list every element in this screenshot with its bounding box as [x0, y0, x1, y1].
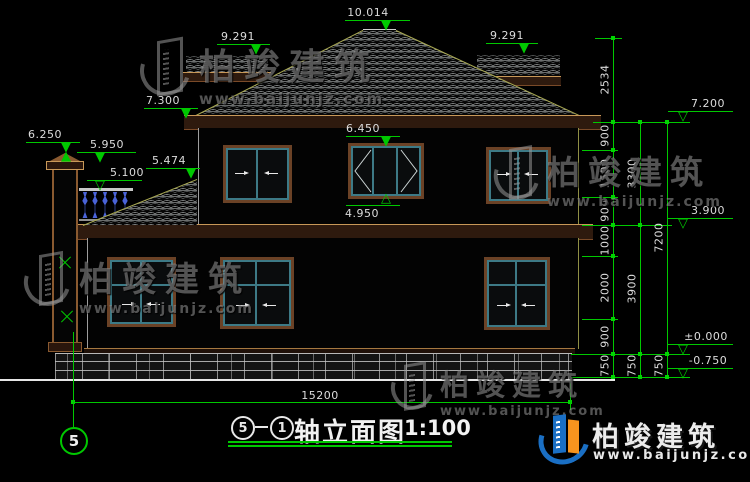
title-underline	[228, 445, 452, 447]
dim-extension-line	[570, 381, 571, 410]
logo-orange-tower	[568, 419, 579, 453]
level-label: 4.950	[332, 207, 392, 220]
window-glass	[487, 260, 547, 327]
dim-tick	[665, 375, 669, 379]
level-triangle-icon: ▲	[56, 151, 76, 162]
watermark-building	[157, 37, 183, 96]
axis-extension-line	[73, 332, 74, 427]
level-triangle-icon: ▼	[176, 108, 196, 119]
sub-ridge-left-tiles	[186, 56, 268, 73]
dim-tick	[638, 352, 642, 356]
slide-arrow-icon	[236, 305, 246, 306]
dim-tick	[611, 352, 615, 356]
window-mullion	[396, 148, 398, 194]
break-mark-icon	[58, 256, 72, 270]
level-triangle-icon: ▼	[514, 43, 534, 54]
window-2f-right	[486, 147, 551, 204]
dim-tick	[638, 223, 642, 227]
dim-tick	[611, 317, 615, 321]
elevation-drawing: 10.014 ▼ 9.291 ▼ 9.291 ▼ 7.300 ▼ 6.250 ▼…	[0, 0, 750, 482]
dim-value: 750	[653, 336, 666, 396]
dim-value: 750	[599, 336, 612, 396]
level-label: 5.950	[77, 138, 137, 151]
dim-tick	[611, 195, 615, 199]
title-axis-to: 1	[270, 416, 294, 440]
slide-arrow-icon	[497, 174, 507, 175]
dim-value: 7200	[653, 208, 666, 268]
logo-blue-tower	[553, 414, 566, 454]
window-mullion	[140, 262, 142, 322]
window-1f-middle	[220, 257, 294, 329]
slide-arrow-icon	[268, 173, 278, 174]
brand-logo-icon	[538, 414, 590, 466]
window-mullion	[517, 152, 519, 199]
dim-tick	[611, 36, 615, 40]
level-triangle-icon: ▼	[90, 152, 110, 163]
window-1f-right	[484, 257, 550, 330]
window-mullion	[515, 262, 517, 325]
level-triangle-icon: △	[376, 193, 396, 204]
drawing-title: 轴立面图	[294, 412, 406, 449]
casement-symbol-icon	[400, 149, 418, 193]
dim-tick	[665, 352, 669, 356]
window-mullion	[256, 150, 258, 198]
window-1f-left	[107, 257, 176, 327]
watermark-logo-icon	[140, 38, 192, 96]
dim-chain-line	[613, 38, 614, 379]
casement-symbol-icon	[354, 149, 372, 193]
window-transom	[112, 284, 171, 286]
title-axis-from: 5	[231, 416, 255, 440]
slide-arrow-icon	[122, 304, 132, 305]
stone-base	[55, 353, 572, 380]
overall-dim-value: 15200	[290, 389, 350, 402]
window-transom	[489, 284, 545, 286]
slide-arrow-icon	[266, 305, 276, 306]
dim-extension-line	[595, 38, 622, 39]
slide-arrow-icon	[525, 305, 535, 306]
dim-value: 3300	[626, 144, 639, 204]
dim-chain-line	[667, 122, 668, 379]
ground-line	[0, 379, 615, 381]
overall-dim-line	[73, 402, 570, 403]
title-dash	[255, 426, 268, 428]
dim-tick	[638, 120, 642, 124]
dim-tick	[611, 223, 615, 227]
level-triangle-icon: ▼	[181, 168, 201, 179]
axis-bubble: 5	[60, 427, 88, 455]
dim-tick	[611, 120, 615, 124]
dim-tick	[638, 375, 642, 379]
level-triangle-icon: ▽	[673, 218, 693, 229]
level-triangle-icon: ▽	[90, 180, 110, 191]
dim-chain-line	[640, 122, 641, 379]
dim-tick	[611, 375, 615, 379]
dim-value: 3900	[626, 259, 639, 319]
slide-arrow-icon	[150, 304, 160, 305]
slide-arrow-icon	[497, 305, 507, 306]
drawing-scale: 1:100	[404, 416, 471, 440]
brand-site: www.baijunjz.com	[593, 448, 750, 463]
dim-tick	[611, 148, 615, 152]
level-triangle-icon: ▼	[246, 44, 266, 55]
dim-tick	[665, 120, 669, 124]
window-transom	[225, 284, 289, 286]
window-mullion	[372, 148, 374, 194]
dim-tick	[611, 254, 615, 258]
baluster	[82, 192, 88, 218]
baluster	[92, 192, 98, 218]
sub-ridge-left-fascia	[183, 72, 271, 82]
slide-arrow-icon	[235, 173, 245, 174]
level-triangle-icon: ▼	[376, 136, 396, 147]
chimney-base	[48, 342, 82, 352]
window-mullion	[255, 262, 257, 324]
level-triangle-icon: ▽	[673, 111, 693, 122]
level-line	[346, 205, 400, 206]
break-mark-icon	[60, 310, 74, 324]
slide-arrow-icon	[528, 174, 538, 175]
dim-value: 2534	[599, 50, 612, 110]
level-label: 5.100	[97, 166, 157, 179]
level-triangle-icon: ▼	[376, 20, 396, 31]
dim-value: 750	[626, 336, 639, 396]
window-glass	[223, 260, 291, 326]
window-2f-left	[223, 145, 292, 203]
title-underline	[228, 441, 452, 443]
